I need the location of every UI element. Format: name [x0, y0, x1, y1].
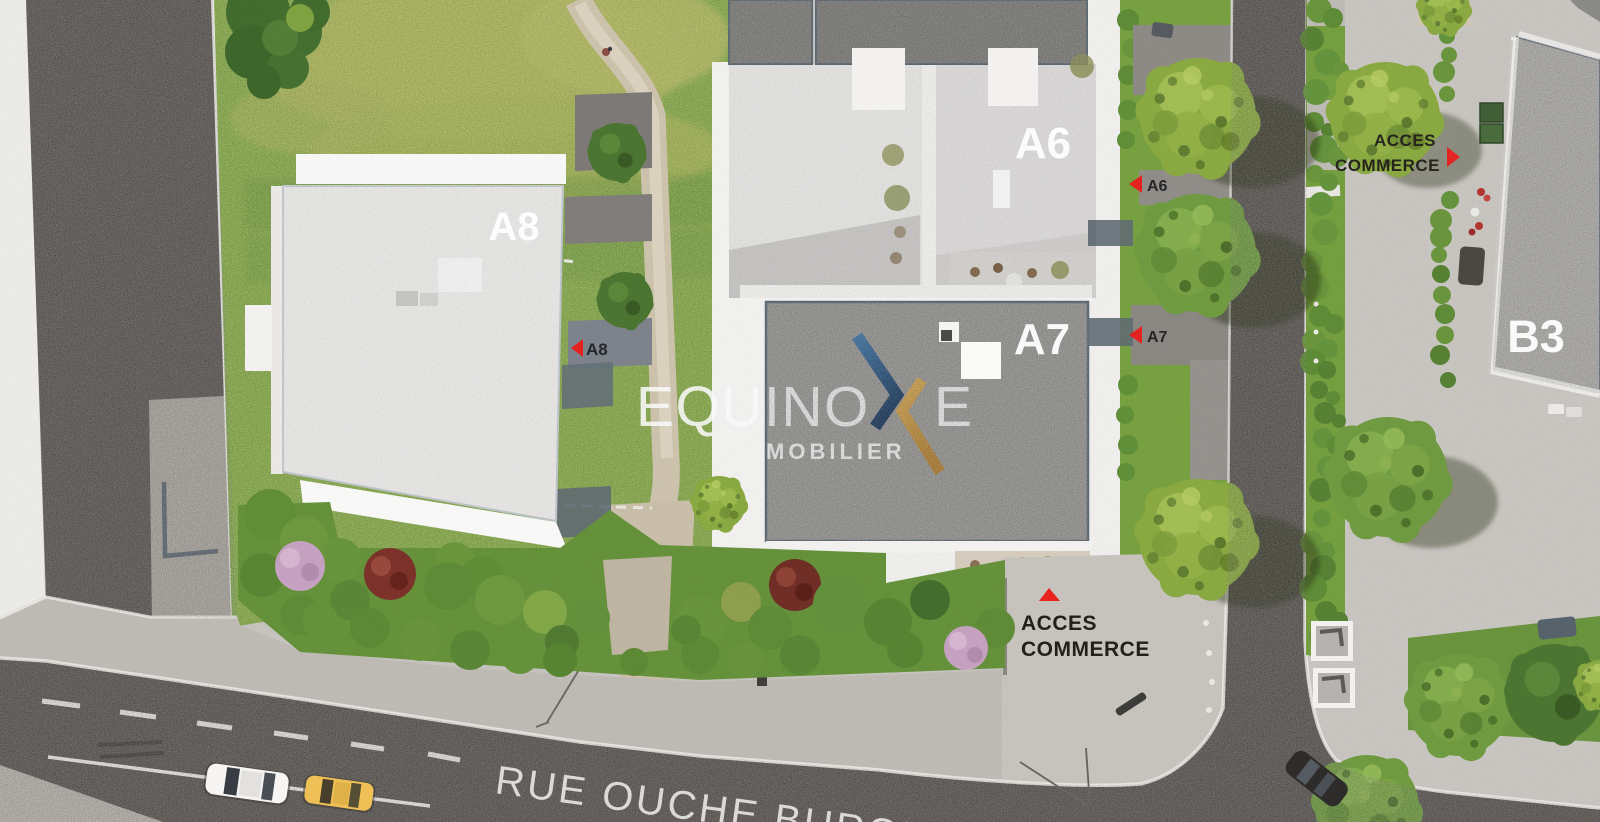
svg-text:ACCES: ACCES: [1021, 612, 1097, 635]
svg-text:A8: A8: [488, 205, 539, 249]
svg-text:A7: A7: [1147, 329, 1168, 346]
svg-text:B3: B3: [1507, 311, 1565, 362]
svg-text:A6: A6: [1015, 119, 1071, 168]
svg-text:A7: A7: [1014, 315, 1070, 364]
svg-text:COMMERCE: COMMERCE: [1021, 638, 1150, 661]
svg-text:A6: A6: [1147, 178, 1168, 195]
svg-text:A8: A8: [586, 340, 608, 359]
